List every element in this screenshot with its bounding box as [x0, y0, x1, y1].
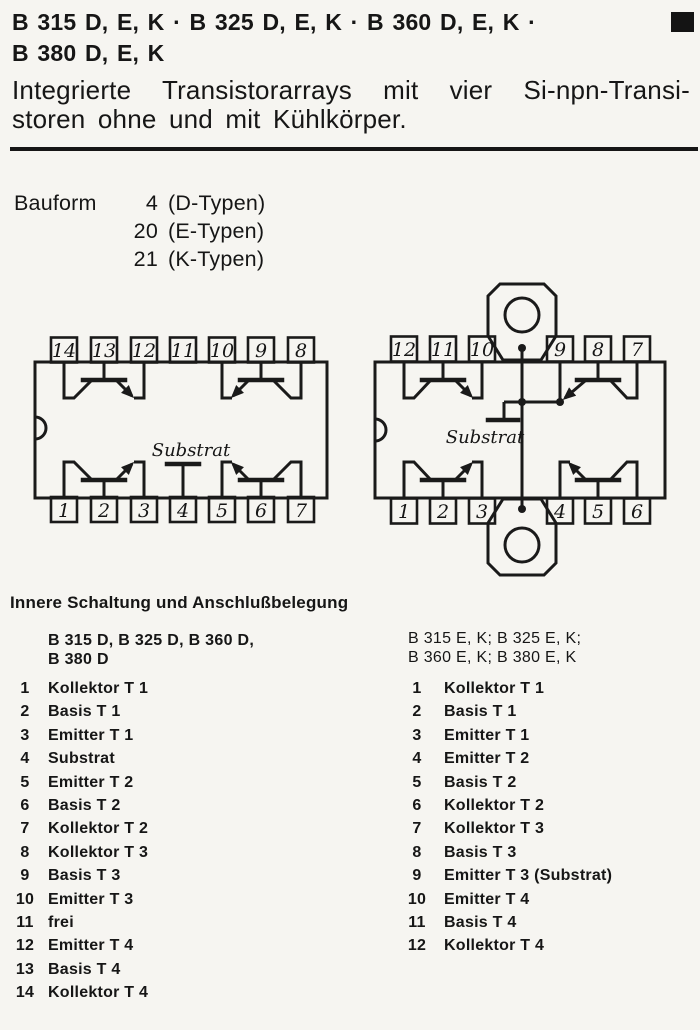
pin-row-number: 11: [10, 914, 40, 932]
divider-rule: [10, 147, 698, 151]
pin-row: 5Emitter T 2: [10, 774, 148, 797]
pin-row-number: 3: [402, 727, 432, 745]
bauform-type: (D-Typen): [168, 191, 265, 216]
pin-row: 6Kollektor T 2: [402, 797, 612, 820]
pin-number: 11: [171, 340, 195, 362]
pin-row: 2Basis T 1: [402, 703, 612, 726]
pin-row-label: Basis T 4: [48, 961, 121, 979]
pin-row-number: 1: [402, 680, 432, 698]
pin-row: 13Basis T 4: [10, 961, 148, 984]
package-body: [35, 362, 327, 498]
pin-number: 1: [58, 500, 70, 522]
pin-row-number: 5: [10, 774, 40, 792]
page-title: B 315 D, E, K · B 325 D, E, K · B 360 D,…: [12, 7, 536, 69]
transistor-t2-symbol: [222, 462, 301, 498]
pinout-list-dip12: 1Kollektor T 1 2Basis T 1 3Emitter T 1 4…: [402, 680, 612, 961]
pin-number: 3: [138, 500, 150, 522]
pin-row-label: Kollektor T 4: [444, 937, 544, 955]
pin-number: 10: [470, 339, 494, 361]
pinout-header-right-line2: B 360 E, K; B 380 E, K: [408, 649, 581, 668]
subtitle-line1: Integrierte Transistorarrays mit vier Si…: [12, 76, 690, 105]
emitter-arrow: [456, 464, 471, 479]
pin-row: 11Basis T 4: [402, 914, 612, 937]
pin-row-number: 11: [402, 914, 432, 932]
pin-number: 2: [436, 501, 449, 523]
pin-number: 1: [398, 501, 410, 523]
package-notch: [375, 419, 386, 441]
emitter-arrow: [233, 464, 248, 479]
pin-row-label: Emitter T 1: [444, 727, 529, 745]
pin-number: 7: [295, 500, 308, 522]
pin-number: 6: [255, 500, 267, 522]
pin-row-number: 12: [10, 937, 40, 955]
emitter-arrow: [233, 381, 248, 396]
pin-row: 8Basis T 3: [402, 844, 612, 867]
emitter-arrow: [117, 464, 132, 479]
pin-number: 5: [216, 500, 228, 522]
page-title-line2: B 380 D, E, K: [12, 38, 536, 69]
transistor-t4-symbol: [404, 362, 482, 398]
pin-row-label: Emitter T 1: [48, 727, 133, 745]
pin-row-number: 3: [10, 727, 40, 745]
pin-number: 3: [476, 501, 488, 523]
pin-row-label: Substrat: [48, 750, 115, 768]
pinout-header-left-line1: B 315 D, B 325 D, B 360 D,: [48, 632, 254, 651]
pin-row-number: 4: [402, 750, 432, 768]
pin-row: 14Kollektor T 4: [10, 984, 148, 1007]
pin-row-number: 13: [10, 961, 40, 979]
emitter-arrow: [117, 381, 132, 396]
pin-row-number: 6: [10, 797, 40, 815]
pin-row: 5Basis T 2: [402, 774, 612, 797]
pin-row: 7Kollektor T 3: [402, 820, 612, 843]
pin-row: 2Basis T 1: [10, 703, 148, 726]
pin-number: 9: [255, 340, 267, 362]
pin-row-label: Emitter T 2: [444, 750, 529, 768]
pin-row-label: Basis T 3: [444, 844, 517, 862]
page-subtitle: Integrierte Transistorarrays mit vier Si…: [12, 76, 690, 134]
pin-row: 4Emitter T 2: [402, 750, 612, 773]
substrate-label: Substrat: [152, 440, 231, 461]
pin-row: 10Emitter T 3: [10, 891, 148, 914]
section-marker-icon: [671, 12, 694, 32]
pin-row: 12Emitter T 4: [10, 937, 148, 960]
emitter-arrow: [570, 464, 585, 479]
transistor-t3-symbol: [560, 362, 637, 402]
pin-number: 9: [554, 339, 566, 361]
pin-number: 8: [592, 339, 604, 361]
pin-row: 10Emitter T 4: [402, 891, 612, 914]
pin-row-label: Basis T 4: [444, 914, 517, 932]
page-title-line1: B 315 D, E, K · B 325 D, E, K · B 360 D,…: [12, 7, 536, 38]
pin-row-number: 10: [10, 891, 40, 909]
subtitle-line2: storen ohne und mit Kühlkörper.: [12, 105, 690, 134]
pin-row-label: Kollektor T 2: [444, 797, 544, 815]
substrate-label: Substrat: [446, 427, 525, 448]
pin-row-number: 7: [402, 820, 432, 838]
bauform-row: Bauform 4 (D-Typen): [14, 191, 265, 219]
pinout-header-left: B 315 D, B 325 D, B 360 D, B 380 D: [48, 632, 254, 669]
pin-row-number: 2: [402, 703, 432, 721]
pin-row-label: Basis T 2: [444, 774, 517, 792]
pin-row-number: 4: [10, 750, 40, 768]
pin-number: 13: [92, 340, 116, 362]
bauform-type: (K-Typen): [168, 247, 265, 272]
pin-row-label: Basis T 3: [48, 867, 121, 885]
pin-number: 5: [592, 501, 604, 523]
pin-number: 7: [631, 339, 644, 361]
pinout-header-right: B 315 E, K; B 325 E, K; B 360 E, K; B 38…: [408, 630, 581, 667]
pin-row-label: frei: [48, 914, 74, 932]
bauform-number: 20: [120, 219, 158, 244]
pin-row-label: Kollektor T 3: [48, 844, 148, 862]
pin-row: 1Kollektor T 1: [10, 680, 148, 703]
bauform-row: 21 (K-Typen): [14, 247, 265, 275]
pin-row: 3Emitter T 1: [402, 727, 612, 750]
pinout-list-dip14: 1Kollektor T 1 2Basis T 1 3Emitter T 1 4…: [10, 680, 148, 1007]
emitter-arrow: [456, 381, 471, 396]
pin-row: 12Kollektor T 4: [402, 937, 612, 960]
pin-row-number: 8: [10, 844, 40, 862]
bauform-type: (E-Typen): [168, 219, 265, 244]
pin-row: 6Basis T 2: [10, 797, 148, 820]
transistor-t1-symbol: [64, 462, 144, 498]
pin-row-label: Basis T 2: [48, 797, 121, 815]
pin-row-label: Kollektor T 1: [48, 680, 148, 698]
pin-row: 8Kollektor T 3: [10, 844, 148, 867]
pin-row-number: 2: [10, 703, 40, 721]
pin-row-label: Basis T 1: [48, 703, 121, 721]
pin-number: 12: [132, 340, 156, 362]
pin-number: 10: [210, 340, 234, 362]
bauform-block: Bauform 4 (D-Typen) 20 (E-Typen) 21 (K-T…: [14, 191, 265, 275]
pin-row-label: Emitter T 4: [444, 891, 529, 909]
pinout-header-left-line2: B 380 D: [48, 651, 254, 670]
pin-number: 11: [431, 339, 455, 361]
pin-row-number: 7: [10, 820, 40, 838]
pin-number: 12: [392, 339, 416, 361]
pin-row-number: 8: [402, 844, 432, 862]
package-notch: [35, 417, 46, 439]
pin-row-label: Emitter T 3: [48, 891, 133, 909]
dip14-bottom-pins: 1 2 3 4 5 6 7: [51, 497, 314, 522]
bauform-label: Bauform: [14, 191, 110, 216]
pin-number: 8: [295, 340, 307, 362]
ic-diagram-dip12: 12 11 10 9 8 7 1 2 3 4 5 6: [368, 282, 672, 582]
bauform-row: 20 (E-Typen): [14, 219, 265, 247]
pin-row: 3Emitter T 1: [10, 727, 148, 750]
transistor-t3-symbol: [222, 362, 301, 398]
pin-row-label: Emitter T 2: [48, 774, 133, 792]
pin-row-label: Kollektor T 4: [48, 984, 148, 1002]
ic-diagram-dip14: 14 13 12 11 10 9 8 1 2 3 4 5 6 7: [28, 336, 334, 528]
pin-row-number: 10: [402, 891, 432, 909]
transistor-t2-symbol: [560, 462, 637, 498]
pin-row-number: 14: [10, 984, 40, 1002]
pin-row-label: Kollektor T 2: [48, 820, 148, 838]
pin-row-number: 5: [402, 774, 432, 792]
pin-number: 4: [553, 501, 566, 523]
pin-number: 6: [631, 501, 643, 523]
datasheet-page: B 315 D, E, K · B 325 D, E, K · B 360 D,…: [0, 0, 700, 1030]
pin-number: 14: [52, 340, 76, 362]
pin-row: 9Basis T 3: [10, 867, 148, 890]
pin-number: 4: [176, 500, 189, 522]
transistor-t4-symbol: [64, 362, 144, 398]
pin-row-number: 9: [10, 867, 40, 885]
pin-row-number: 6: [402, 797, 432, 815]
bauform-number: 21: [120, 247, 158, 272]
pin-row: 1Kollektor T 1: [402, 680, 612, 703]
emitter-arrow: [565, 381, 585, 398]
pin-row: 11frei: [10, 914, 148, 937]
dip14-top-pins: 14 13 12 11 10 9 8: [51, 338, 314, 363]
pin-row-label: Kollektor T 3: [444, 820, 544, 838]
pin-number: 2: [97, 500, 110, 522]
substrate-symbol: [167, 464, 199, 498]
pin-row-number: 1: [10, 680, 40, 698]
pin-row-label: Kollektor T 1: [444, 680, 544, 698]
pin-row: 4Substrat: [10, 750, 148, 773]
pin-row: 9Emitter T 3 (Substrat): [402, 867, 612, 890]
pin-row-number: 9: [402, 867, 432, 885]
pin-row-number: 12: [402, 937, 432, 955]
section-heading: Innere Schaltung und Anschlußbelegung: [10, 593, 348, 613]
pin-row-label: Emitter T 4: [48, 937, 133, 955]
bauform-number: 4: [120, 191, 158, 216]
transistor-t1-symbol: [404, 462, 482, 498]
pin-row-label: Basis T 1: [444, 703, 517, 721]
pin-row: 7Kollektor T 2: [10, 820, 148, 843]
pinout-header-right-line1: B 315 E, K; B 325 E, K;: [408, 630, 581, 649]
pin-row-label: Emitter T 3 (Substrat): [444, 867, 612, 885]
